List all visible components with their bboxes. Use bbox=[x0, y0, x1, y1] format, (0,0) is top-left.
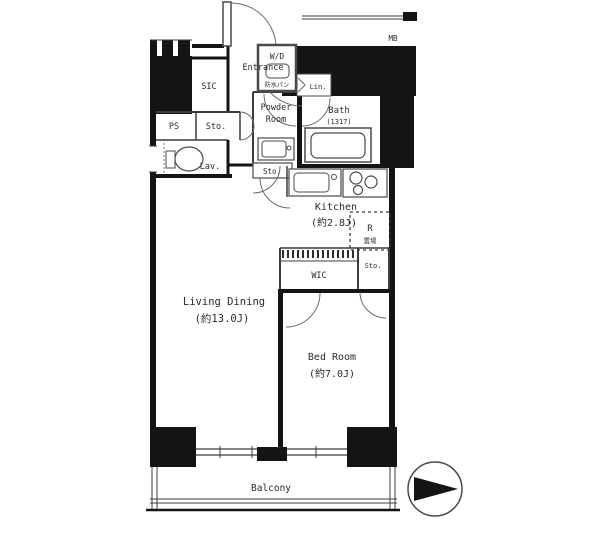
bedroom-label: Bed Room bbox=[308, 352, 356, 363]
powder-room-label-2: Room bbox=[266, 115, 286, 125]
lav-window bbox=[149, 146, 157, 172]
washer-dryer-label: W/D bbox=[270, 52, 285, 61]
living-size-label: (約13.0J) bbox=[195, 312, 250, 325]
living-label: Living Dining bbox=[183, 296, 265, 308]
bathtub bbox=[305, 128, 371, 162]
storage-mid-label: Sto. bbox=[263, 167, 281, 176]
north-arrow-icon bbox=[408, 462, 462, 516]
toilet bbox=[164, 143, 203, 175]
kitchen-sink bbox=[289, 169, 341, 196]
sic-label: SIC bbox=[201, 82, 216, 92]
meter-box-label: MB bbox=[388, 34, 398, 43]
refrigerator-label: R bbox=[367, 224, 373, 234]
bath-size-label: (1317) bbox=[326, 118, 351, 126]
kitchen-size-label: (約2.8J) bbox=[311, 216, 357, 229]
kitchen-label: Kitchen bbox=[315, 202, 357, 213]
floor-plan: R 置場 W/D 防水パン Lin. MB SIC Entrance PS St… bbox=[0, 0, 600, 533]
bedroom-size-label: (約7.0J) bbox=[309, 367, 355, 380]
pipe-space-label: PS bbox=[169, 122, 179, 132]
pillar-bottom-right bbox=[347, 427, 397, 467]
entrance-label: Entrance bbox=[243, 63, 284, 73]
lavatory-label: Lav. bbox=[200, 162, 220, 172]
floor-plan-canvas: R 置場 W/D 防水パン Lin. MB SIC Entrance PS St… bbox=[0, 0, 600, 533]
entrance-door bbox=[223, 2, 276, 47]
pillar-bottom-left bbox=[150, 427, 196, 467]
pillar-top-left bbox=[150, 56, 192, 114]
washer-dryer-sub-label: 防水パン bbox=[265, 81, 289, 89]
powder-room-label-1: Powder bbox=[261, 103, 292, 113]
storage-bed-label: Sto. bbox=[365, 262, 382, 270]
storage-top-label: Sto. bbox=[206, 122, 226, 132]
meter-box-line bbox=[302, 12, 417, 21]
linen-closet: Lin. bbox=[297, 74, 331, 96]
balcony-label: Balcony bbox=[251, 483, 291, 494]
bath-label: Bath bbox=[328, 106, 350, 116]
refrigerator-sub-label: 置場 bbox=[364, 236, 378, 245]
wic-label: WIC bbox=[311, 271, 326, 281]
powder-sink bbox=[258, 138, 294, 160]
stove bbox=[343, 169, 387, 197]
linen-label: Lin. bbox=[310, 83, 327, 91]
window-center-post bbox=[257, 447, 287, 461]
